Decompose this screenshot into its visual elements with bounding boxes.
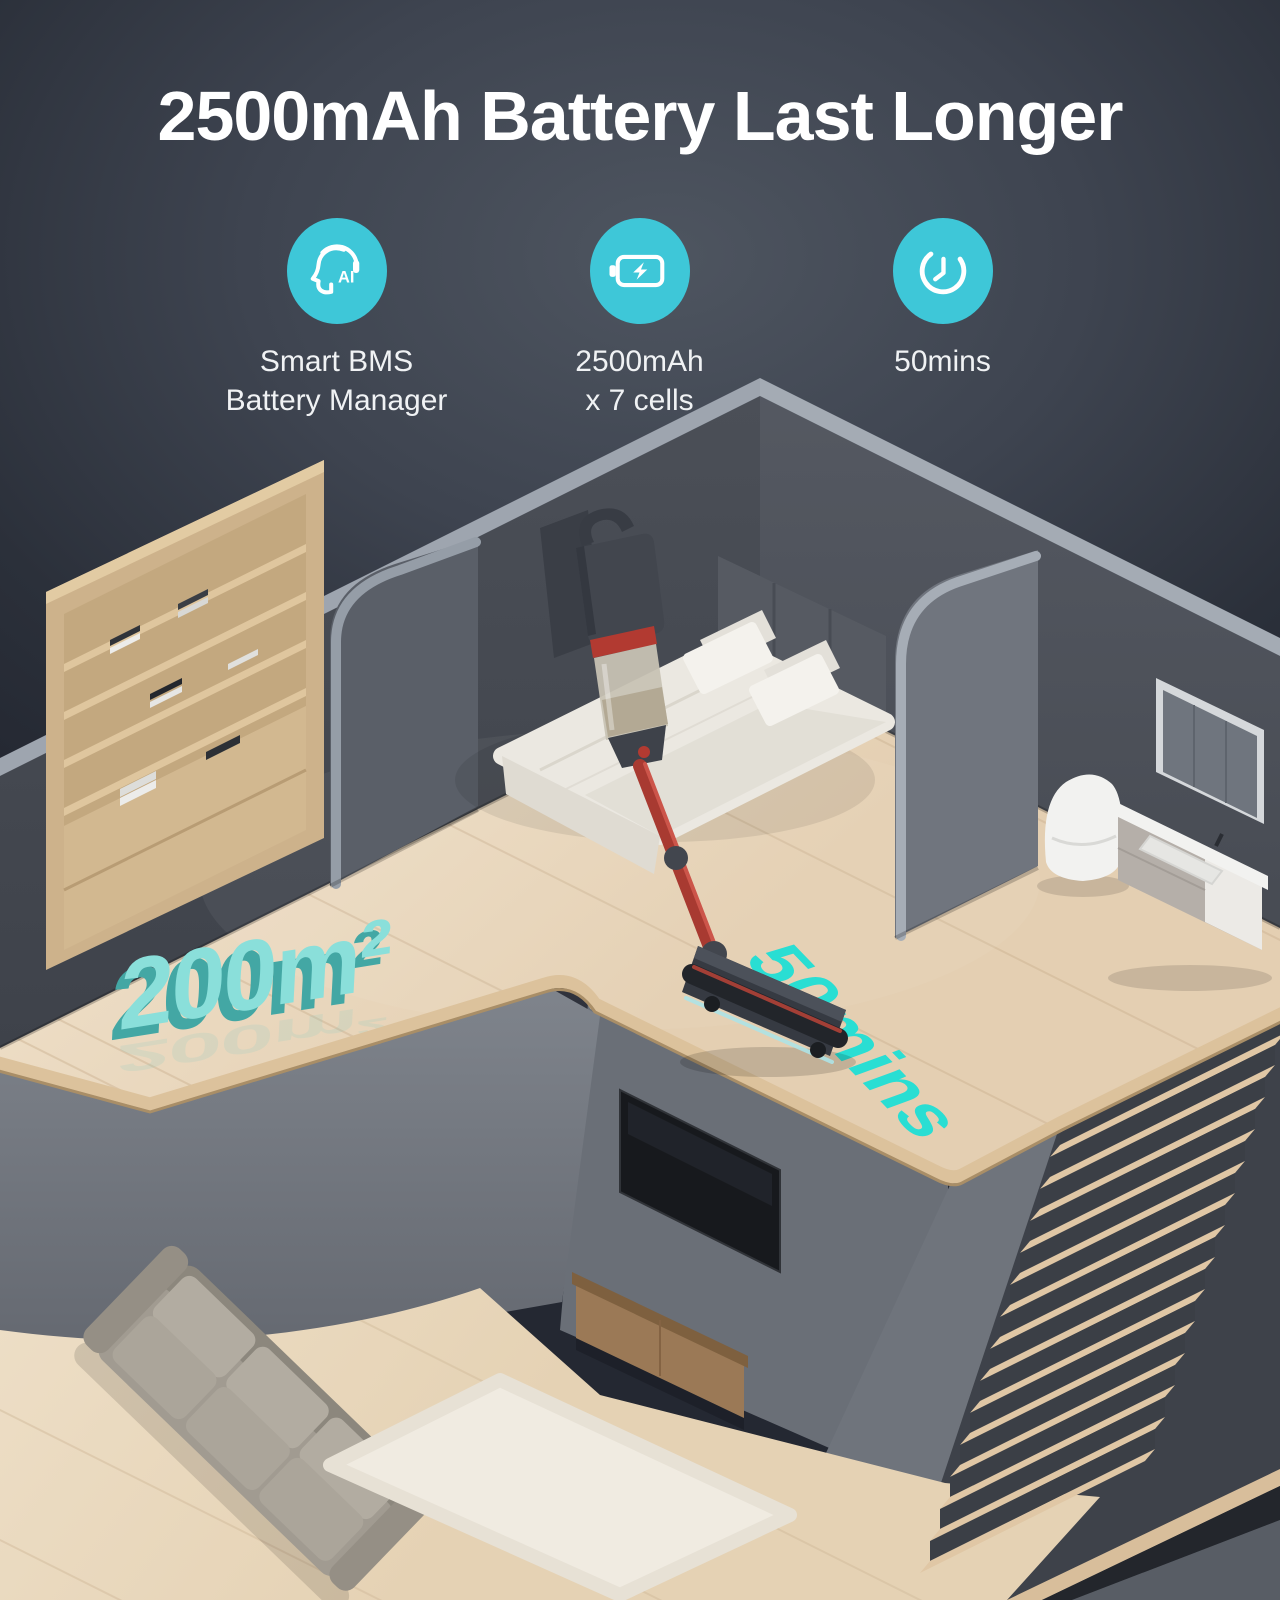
feature-battery-capacity: 2500mAh x 7 cells	[488, 218, 791, 420]
page-title: 2500mAh Battery Last Longer	[0, 76, 1280, 156]
ai-smart-bms-icon: AI	[287, 218, 387, 324]
feature-row: AI Smart BMS Battery Manager 2500mAh x 7…	[185, 218, 1095, 420]
feature-label: 2500mAh x 7 cells	[488, 342, 791, 420]
feature-smart-bms: AI Smart BMS Battery Manager	[185, 218, 488, 420]
clock-runtime-icon	[893, 218, 993, 324]
feature-label: 50mins	[791, 342, 1094, 381]
svg-text:AI: AI	[337, 269, 353, 287]
dust-cup	[594, 644, 668, 740]
battery-charging-icon	[590, 218, 690, 324]
partition-wall-bathroom	[895, 550, 1038, 938]
feature-label: Smart BMS Battery Manager	[185, 342, 488, 420]
product-marketing-image: 200m² 200m² 200m² 50mins	[0, 0, 1280, 1600]
feature-runtime: 50mins	[791, 218, 1094, 420]
